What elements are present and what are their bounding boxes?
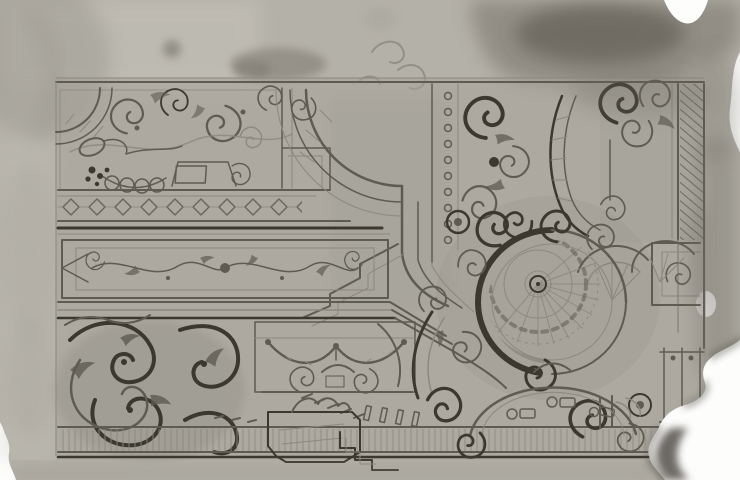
photo-canvas	[0, 0, 740, 480]
stain-faint-blob	[364, 6, 396, 30]
frieze-center-rosette	[220, 263, 230, 273]
mottle-left-2	[5, 320, 55, 440]
stain-top-right-core	[515, 4, 685, 64]
stain-smudge-small	[234, 60, 270, 80]
mottle-left-1	[0, 160, 60, 340]
stain-spot	[163, 40, 181, 58]
artwork-image	[0, 0, 740, 480]
ornament-drawing	[8, 73, 738, 480]
diamond-pattern-band	[58, 196, 302, 218]
